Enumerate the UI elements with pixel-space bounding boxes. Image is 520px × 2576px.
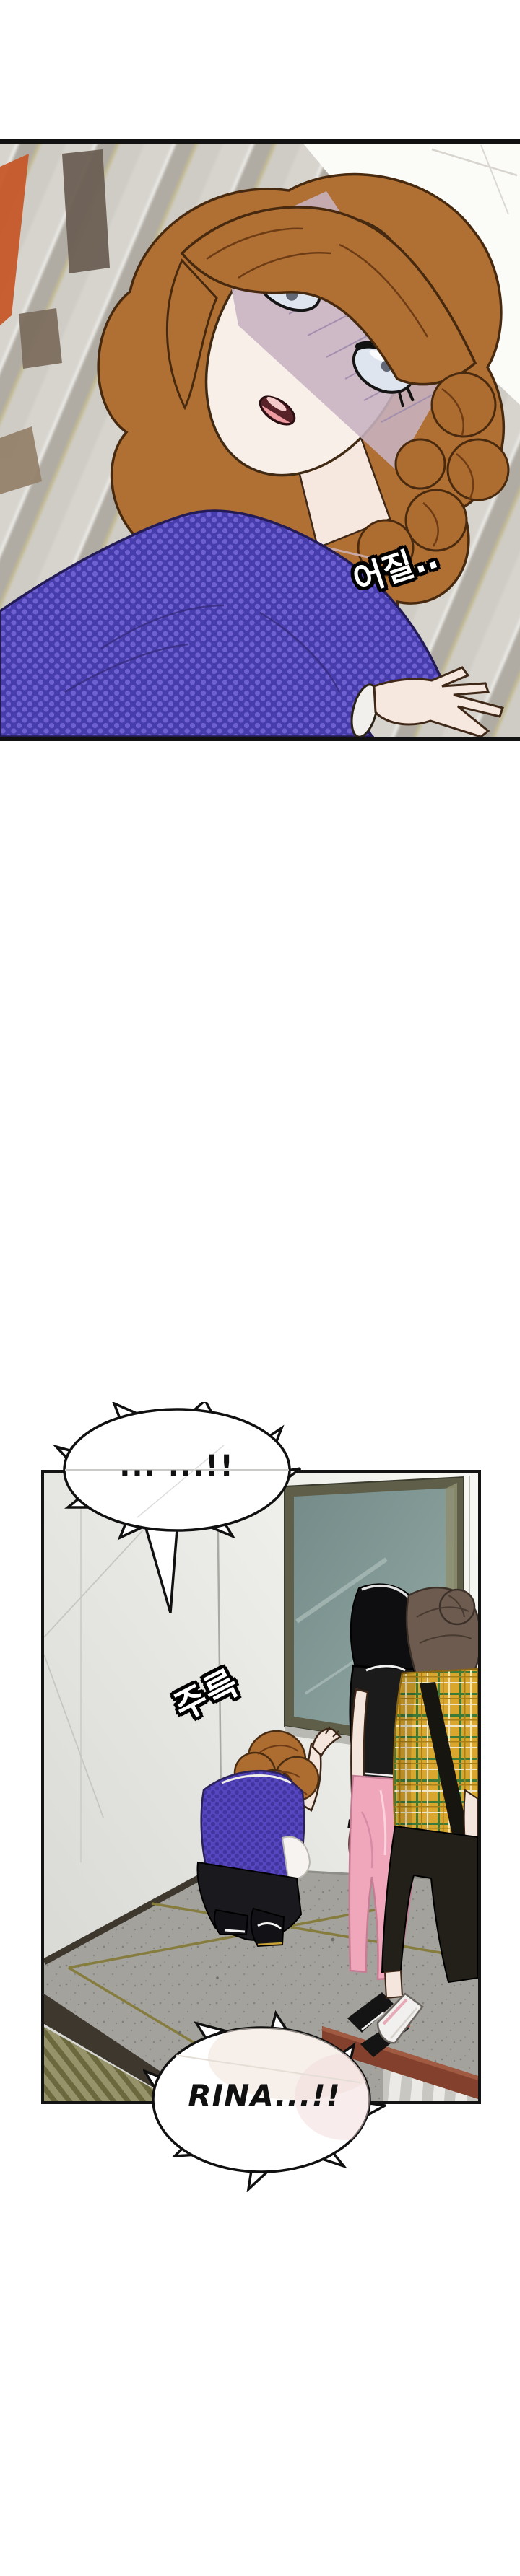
speech-bubble-silence: ... ...!! (51, 1402, 303, 1618)
speech-bubble-rina: RINA...!! (143, 2010, 386, 2192)
panel-1: 어질.. (0, 139, 520, 741)
silence-text: ... ...!! (51, 1450, 303, 1483)
comic-page: 어질.. (0, 0, 520, 2576)
banister (0, 149, 110, 494)
rina-text: RINA...!! (143, 2078, 386, 2113)
panel1-art (0, 144, 520, 737)
